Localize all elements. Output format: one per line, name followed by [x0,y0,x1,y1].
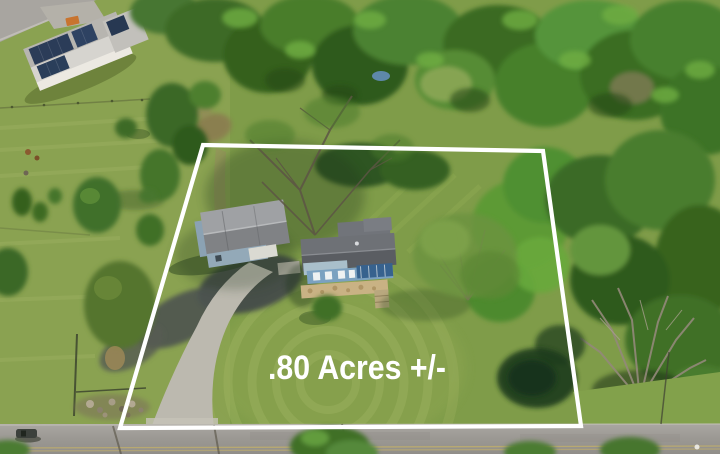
acreage-label: .80 Acres +/- [268,349,446,387]
dirt-spot [105,346,125,370]
covered-porch [356,263,393,278]
rock-pile [74,394,150,420]
aerial-photograph: .80 Acres +/- [0,0,720,454]
pasture-object [25,149,31,155]
mailbox [695,445,700,450]
aerial-listing-photo: .80 Acres +/- [0,0,720,454]
blue-pool [372,71,390,81]
